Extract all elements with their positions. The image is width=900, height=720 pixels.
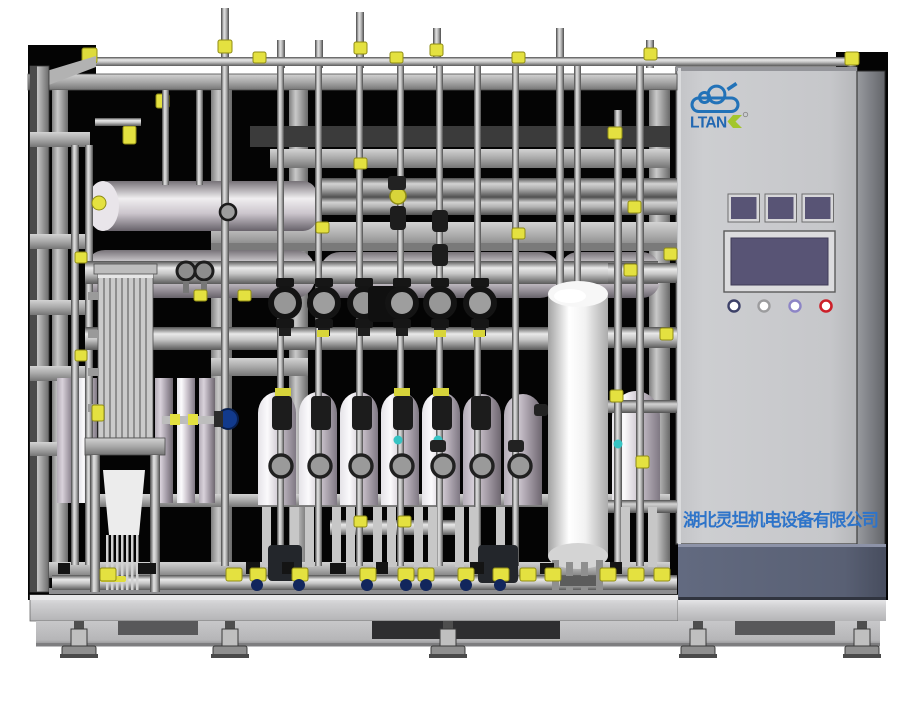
svg-text:LTAN: LTAN	[690, 115, 727, 132]
svg-text:湖北灵坦机电设备有限公司: 湖北灵坦机电设备有限公司	[683, 510, 879, 530]
